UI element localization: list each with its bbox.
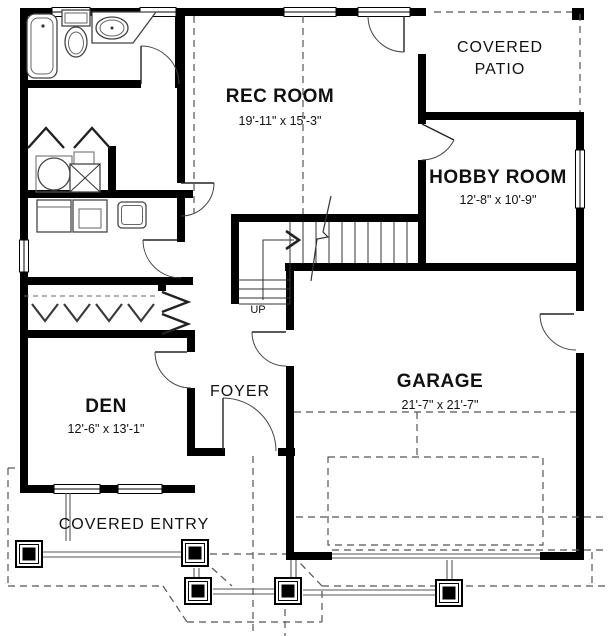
stair-treads-upper <box>290 222 407 263</box>
garage-dims: 21'-7" x 21'-7" <box>402 398 479 412</box>
dryer-icon <box>73 200 107 232</box>
walkway <box>253 456 285 636</box>
rec-room-label: REC ROOM <box>226 86 335 107</box>
garage-slab-outline <box>328 457 543 545</box>
porch-column <box>182 540 208 566</box>
covered-patio-label-2: PATIO <box>475 61 526 78</box>
sink-icon <box>92 12 156 43</box>
water-heater-icon <box>36 156 72 192</box>
covered-entry <box>8 456 606 636</box>
covered-entry-label: COVERED ENTRY <box>59 516 210 533</box>
porch-column <box>436 580 462 606</box>
den-label: DEN <box>85 396 127 417</box>
hanger-icon <box>32 304 58 321</box>
hobby-room-dims: 12'-8" x 10'-9" <box>460 193 537 207</box>
furnace-icon <box>70 152 100 192</box>
door-swing-laundry <box>143 240 181 278</box>
stair-treads-lower <box>239 263 290 304</box>
door-swing-hall <box>181 183 214 216</box>
hanger-icon <box>96 304 122 321</box>
den-dims: 12'-6" x 13'-1" <box>68 422 145 436</box>
door-swing-garage-foyer <box>252 332 286 366</box>
bifold-door-icon <box>162 292 188 312</box>
coat-closet <box>24 292 188 334</box>
porch-railings <box>42 493 452 595</box>
window <box>358 8 410 17</box>
laundry-sink-icon <box>118 202 146 228</box>
door-swing-garage-side <box>540 314 576 350</box>
floor-plan-svg: UP <box>0 0 608 636</box>
hobby-room-label: HOBBY ROOM <box>429 167 567 188</box>
hanger-icon <box>128 304 154 321</box>
washer-icon <box>37 200 71 232</box>
door-swing-bathroom <box>141 46 179 84</box>
door-swing-den <box>155 352 191 388</box>
door-swing-rec-to-patio <box>368 16 404 52</box>
stairs-up-label: UP <box>250 304 265 316</box>
window <box>284 8 336 17</box>
porch-column <box>185 578 211 604</box>
window <box>54 485 100 494</box>
window <box>576 150 585 208</box>
toilet-icon <box>62 10 90 57</box>
garage-label: GARAGE <box>397 371 483 392</box>
laundry <box>37 200 146 232</box>
bathroom <box>27 10 156 78</box>
rec-room-dims: 19'-11" x 15'-3" <box>239 114 322 128</box>
porch-column <box>16 541 42 567</box>
porch-column <box>275 578 301 604</box>
window <box>118 485 162 494</box>
bifold-door-icon <box>28 128 64 148</box>
floor-plan: UP <box>0 0 608 636</box>
bifold-door-icon <box>74 128 110 148</box>
covered-patio-label-1: COVERED <box>457 39 543 56</box>
hanger-icon <box>64 304 90 321</box>
mechanical-closet <box>28 128 110 192</box>
door-swing-front-entry <box>223 398 276 451</box>
window <box>20 240 29 272</box>
foyer-label: FOYER <box>210 383 270 400</box>
doors <box>141 16 576 451</box>
bathtub-icon <box>27 14 57 78</box>
